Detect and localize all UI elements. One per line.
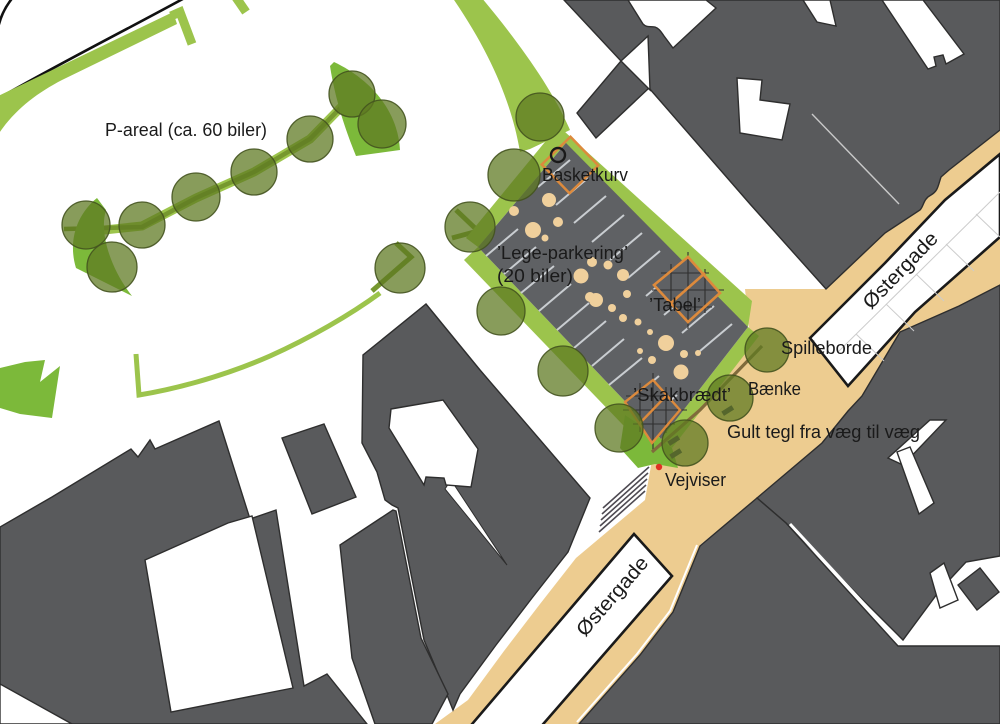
svg-text:Bænke: Bænke	[748, 379, 801, 399]
svg-text:Basketkurv: Basketkurv	[542, 165, 628, 185]
svg-text:(20 biler): (20 biler)	[497, 266, 573, 286]
svg-text:Spilleborde: Spilleborde	[781, 338, 872, 358]
svg-text:’Tabel’: ’Tabel’	[649, 295, 701, 315]
svg-text:Vejviser: Vejviser	[665, 470, 726, 490]
svg-text:Gult tegl fra væg til væg: Gult tegl fra væg til væg	[727, 422, 920, 442]
svg-text:’Skakbrædt’: ’Skakbrædt’	[633, 385, 731, 405]
svg-text:’Lege-parkering’: ’Lege-parkering’	[497, 243, 628, 263]
svg-text:P-areal (ca. 60 biler): P-areal (ca. 60 biler)	[105, 120, 267, 140]
